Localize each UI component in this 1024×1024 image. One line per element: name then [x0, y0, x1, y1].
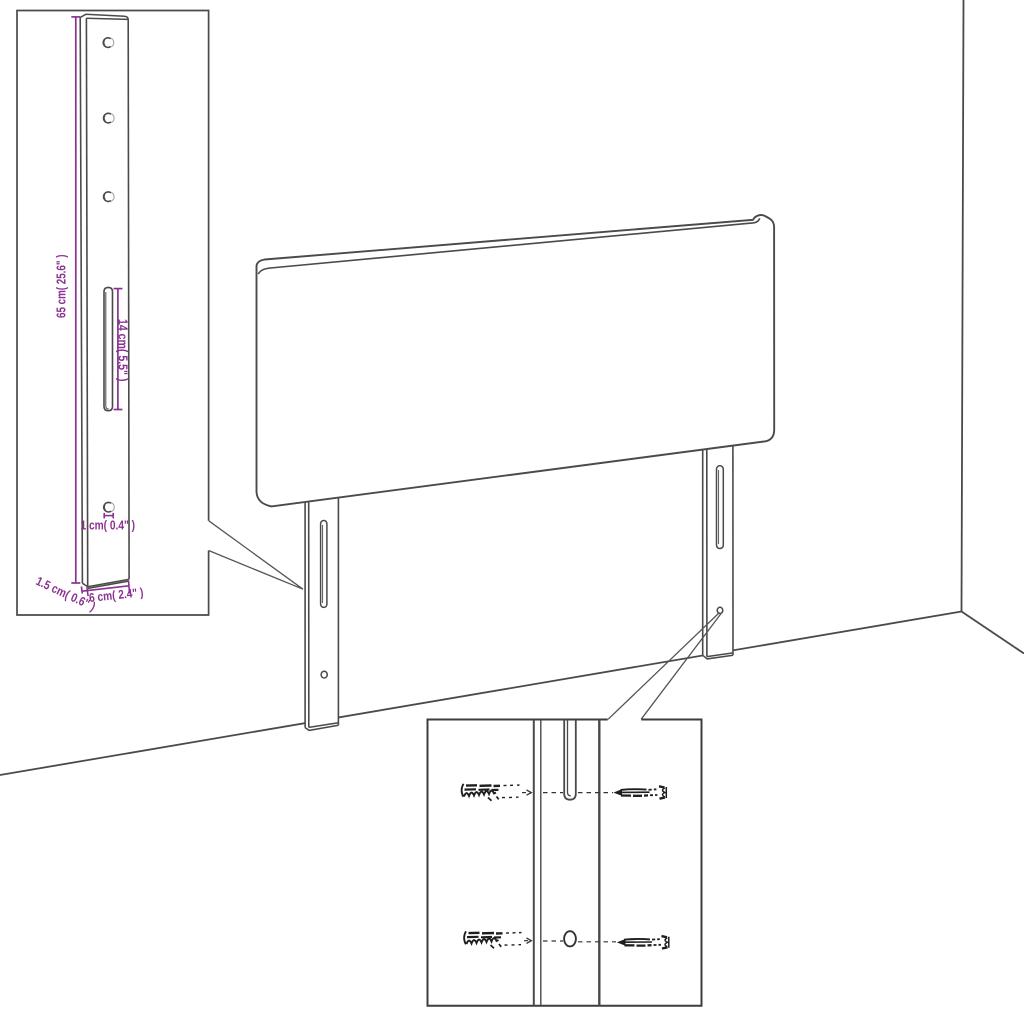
svg-text:14 cm( 5.5" ): 14 cm( 5.5" ) [116, 319, 130, 382]
svg-text:1 cm( 0.4" ): 1 cm( 0.4" ) [81, 519, 136, 533]
svg-text:65 cm( 25.6" ): 65 cm( 25.6" ) [55, 255, 69, 319]
